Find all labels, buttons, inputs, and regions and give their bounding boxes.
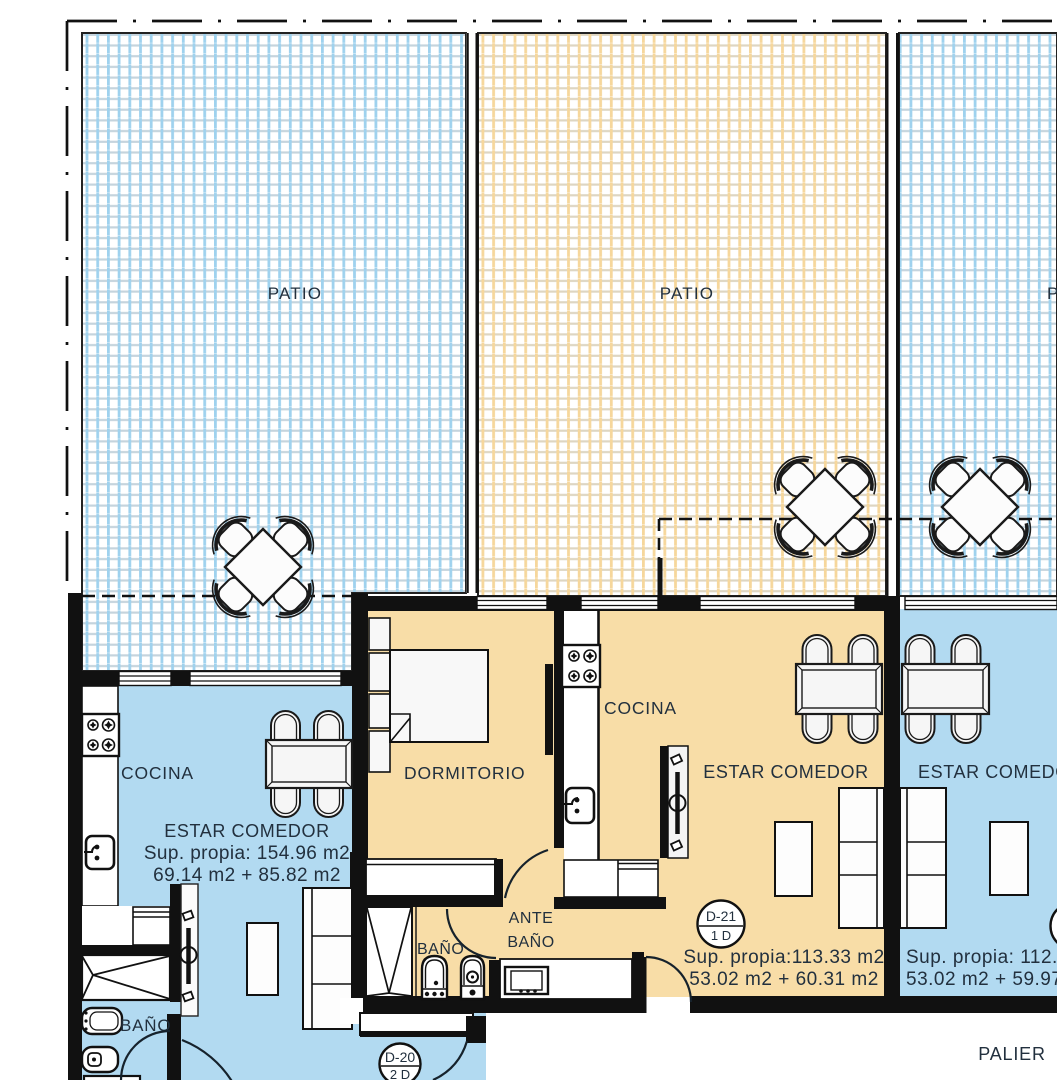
svg-text:69.14 m2 + 85.82 m2: 69.14 m2 + 85.82 m2 [153,865,341,886]
svg-text:ANTE: ANTE [509,910,554,927]
svg-text:Sup. propia:113.33 m2: Sup. propia:113.33 m2 [683,947,884,968]
svg-text:PATIO: PATIO [268,284,323,303]
svg-text:2 D: 2 D [390,1067,410,1080]
svg-text:53.02 m2 + 60.31 m2: 53.02 m2 + 60.31 m2 [689,969,879,990]
svg-text:D-21: D-21 [706,908,737,924]
svg-text:ESTAR COMEDOR: ESTAR COMEDOR [918,762,1057,782]
svg-text:BAÑO: BAÑO [507,931,554,951]
svg-text:PALIER: PALIER [978,1044,1046,1064]
svg-text:DORMITORIO: DORMITORIO [404,763,525,783]
svg-text:1 D: 1 D [711,928,731,943]
svg-text:Sup. propia: 154.96 m2: Sup. propia: 154.96 m2 [144,843,350,864]
svg-text:PATIO: PATIO [1047,284,1057,303]
svg-text:D-20: D-20 [385,1049,416,1065]
svg-text:COCINA: COCINA [121,763,194,783]
svg-text:ESTAR COMEDOR: ESTAR COMEDOR [164,821,329,841]
svg-text:ESTAR COMEDOR: ESTAR COMEDOR [703,762,868,782]
svg-text:PATIO: PATIO [660,284,715,303]
svg-text:Sup. propia: 112.97 m2: Sup. propia: 112.97 m2 [906,947,1057,968]
svg-text:COCINA: COCINA [604,698,677,718]
svg-text:53.02 m2 + 59.97 m2: 53.02 m2 + 59.97 m2 [906,969,1057,990]
svg-text:BAÑO: BAÑO [417,938,464,958]
